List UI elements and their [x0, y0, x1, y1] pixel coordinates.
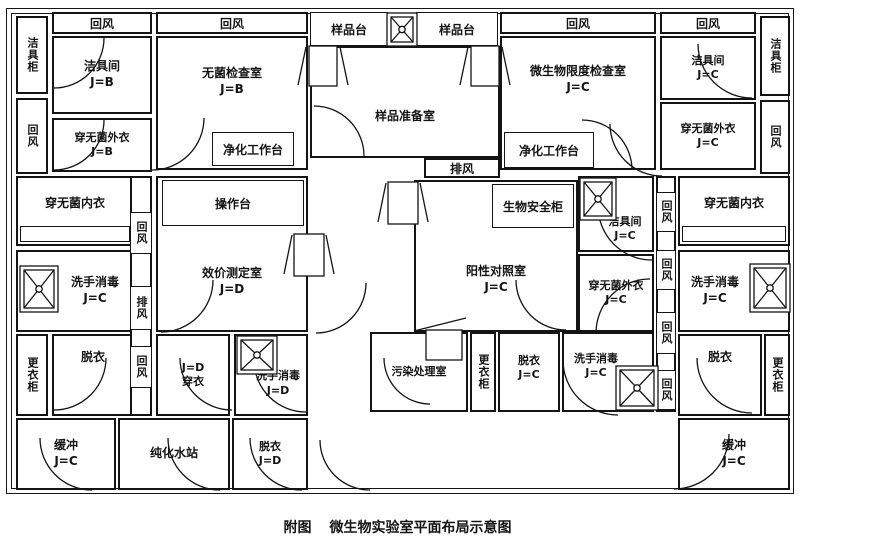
figure-caption-prefix: 附图	[284, 520, 312, 536]
bench	[20, 226, 130, 242]
room-cleaning-room-center: 洁具间J=C	[578, 176, 654, 252]
room-label: 穿无菌外衣J=B	[75, 131, 130, 160]
room-label: 缓冲J=C	[722, 438, 746, 469]
room-dress-d: J=D穿衣	[156, 334, 230, 416]
clothes-cabinet: 更衣柜	[764, 334, 790, 416]
return-air-plenum: 回风	[660, 12, 756, 34]
room-buffer-right: 缓冲J=C	[678, 418, 790, 490]
equip-sample-bench: 样品台	[416, 12, 498, 46]
cleaning-cabinet: 洁具柜	[760, 16, 790, 96]
room-label: 脱衣J=D	[259, 440, 281, 469]
room-label: 缓冲J=C	[54, 438, 78, 469]
room-sterile-outerwear-center: 穿无菌外衣J=C	[578, 254, 654, 332]
equip-operation-bench: 操作台	[162, 180, 304, 226]
room-label: 脱衣J=C	[518, 354, 540, 383]
floor-plan: 回风 回风 回风 回风 洁具柜 回风 更衣柜 洁具间J=B 无菌检查室J=B 穿…	[0, 0, 872, 550]
room-label: 纯化水站	[150, 446, 198, 462]
room-undress-right: 脱衣	[678, 334, 762, 416]
return-air-duct: 回风	[760, 100, 790, 174]
room-label: 微生物限度检查室J=C	[530, 64, 626, 95]
room-buffer-left: 缓冲J=C	[16, 418, 116, 490]
room-label: 脱衣	[708, 350, 732, 366]
room-cleaning-room-b: 洁具间J=B	[52, 36, 152, 114]
room-label: 洗手消毒J=D	[256, 369, 300, 398]
equip-clean-bench: 净化工作台	[504, 132, 594, 168]
room-label: 样品准备室	[375, 109, 435, 125]
return-air-duct: 回风	[656, 250, 676, 290]
exhaust-air-duct: 排风	[130, 286, 152, 330]
room-handwash-center: 洗手消毒J=C	[562, 332, 654, 412]
return-air-duct: 回风	[16, 98, 48, 174]
room-sterile-outerwear-right: 穿无菌外衣J=C	[660, 102, 756, 170]
figure-caption: 附图微生物实验室平面布局示意图	[0, 517, 795, 537]
room-purified-water-station: 纯化水站	[118, 418, 230, 490]
room-handwash-left: 洗手消毒J=C	[16, 250, 134, 332]
equip-biosafety-cabinet: 生物安全柜	[492, 184, 574, 228]
return-air-duct: 回风	[656, 192, 676, 232]
room-label: 穿无菌内衣	[45, 196, 105, 212]
room-undress-left: 脱衣	[52, 334, 134, 416]
room-undress-d: 脱衣J=D	[232, 418, 308, 490]
room-label: 污染处理室	[392, 365, 447, 379]
equip-clean-bench: 净化工作台	[212, 132, 294, 166]
room-label: 无菌检查室J=B	[202, 66, 262, 97]
room-label: 穿无菌外衣J=C	[589, 279, 644, 308]
room-label: 脱衣	[81, 350, 105, 366]
room-handwash-d: 洗手消毒J=D	[234, 334, 308, 416]
bench	[682, 226, 786, 242]
equip-sample-bench: 样品台	[310, 12, 388, 46]
room-sample-prep: 样品准备室	[310, 46, 500, 158]
room-label: 阳性对照室J=C	[466, 264, 526, 295]
return-air-duct: 回风	[656, 312, 676, 354]
room-label: 洗手消毒J=C	[691, 275, 739, 306]
room-label: 穿无菌外衣J=C	[681, 122, 736, 151]
room-label: 洗手消毒J=C	[574, 352, 618, 381]
figure-caption-title: 微生物实验室平面布局示意图	[330, 520, 512, 536]
room-label: 洁具间J=B	[84, 59, 120, 90]
room-sterile-outerwear-b: 穿无菌外衣J=B	[52, 118, 152, 172]
room-label: 效价测定室J=D	[202, 266, 262, 297]
room-contamination-treatment: 污染处理室	[370, 332, 468, 412]
room-handwash-right: 洗手消毒J=C	[678, 250, 790, 332]
return-air-duct: 回风	[656, 370, 676, 410]
return-air-duct: 回风	[130, 212, 152, 254]
room-label: 穿无菌内衣	[704, 196, 764, 212]
room-undress-center: 脱衣J=C	[498, 332, 560, 412]
room-label: J=D穿衣	[182, 361, 204, 390]
return-air-plenum: 回风	[52, 12, 152, 34]
return-air-plenum: 回风	[500, 12, 656, 34]
room-label: 洗手消毒J=C	[71, 275, 119, 306]
exhaust-air-duct: 排风	[424, 158, 500, 178]
room-label: 洁具间J=C	[692, 54, 725, 83]
cleaning-cabinet: 洁具柜	[16, 16, 48, 94]
room-cleaning-room-right: 洁具间J=C	[660, 36, 756, 100]
clothes-cabinet: 更衣柜	[470, 332, 496, 412]
clothes-cabinet: 更衣柜	[16, 334, 48, 416]
room-label: 洁具间J=C	[609, 215, 642, 244]
return-air-plenum: 回风	[156, 12, 308, 34]
return-air-duct: 回风	[130, 346, 152, 388]
